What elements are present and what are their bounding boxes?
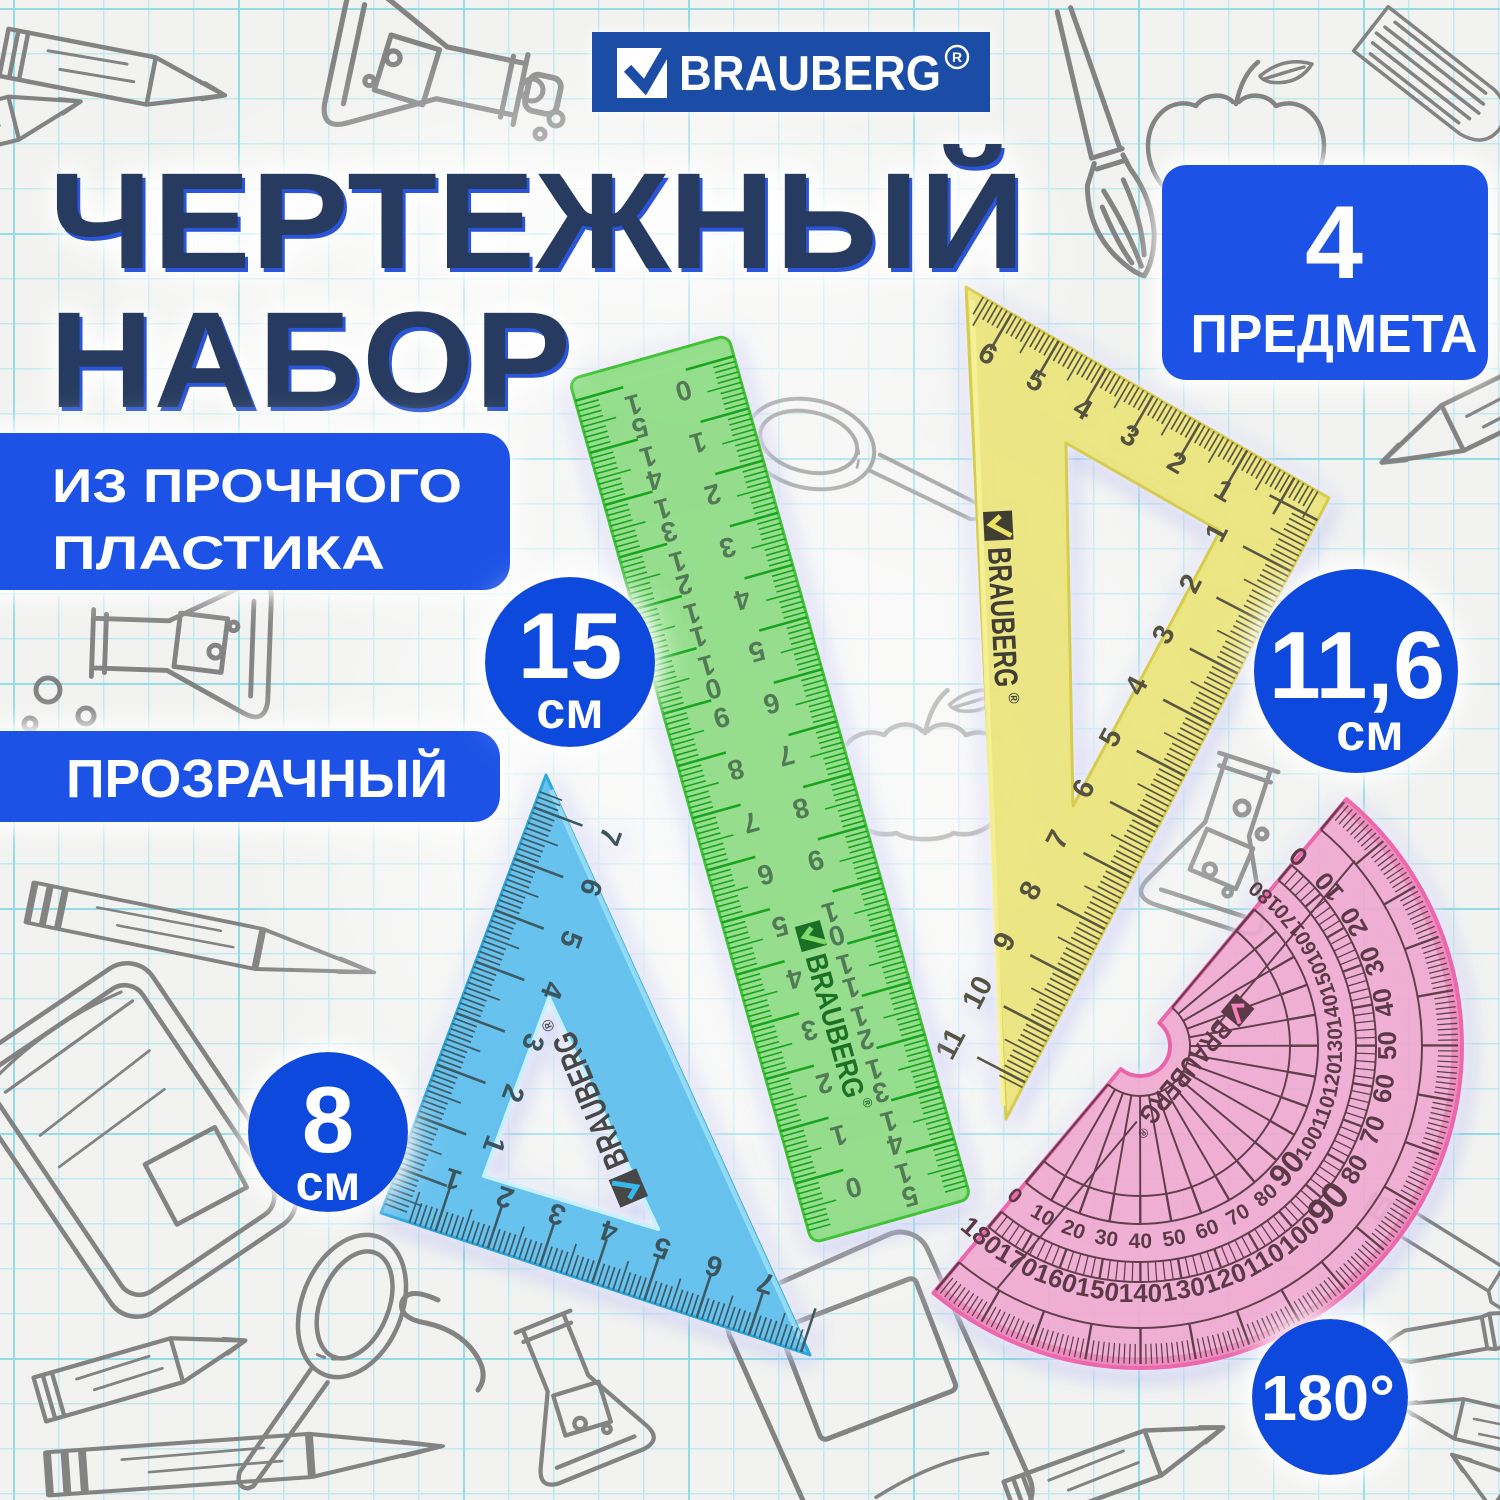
svg-text:130: 130 [1324, 1028, 1347, 1063]
svg-text:ПЛАСТИКА: ПЛАСТИКА [52, 526, 385, 579]
svg-text:60: 60 [1366, 1072, 1401, 1106]
svg-text:BRAUBERG: BRAUBERG [981, 546, 1025, 688]
svg-text:®: ® [1005, 692, 1023, 704]
svg-text:140: 140 [1119, 1278, 1162, 1308]
svg-text:ИЗ ПРОЧНОГО: ИЗ ПРОЧНОГО [52, 459, 462, 512]
svg-text:40: 40 [1129, 1230, 1152, 1253]
svg-text:50: 50 [1161, 1225, 1188, 1252]
svg-text:см: см [1336, 704, 1403, 762]
svg-text:см: см [296, 1155, 361, 1211]
svg-text:4: 4 [1305, 185, 1363, 301]
svg-text:R: R [952, 49, 962, 65]
svg-text:см: см [536, 682, 603, 740]
svg-text:ПРОЗРАЧНЫЙ: ПРОЗРАЧНЫЙ [66, 748, 448, 809]
svg-text:ЧЕРТЕЖНЫЙ: ЧЕРТЕЖНЫЙ [49, 143, 1025, 298]
svg-text:40: 40 [1366, 986, 1401, 1020]
svg-text:50: 50 [1372, 1031, 1402, 1060]
svg-text:НАБОР: НАБОР [49, 284, 571, 437]
svg-text:180°: 180° [1261, 1362, 1395, 1434]
svg-text:ПРЕДМЕТА: ПРЕДМЕТА [1191, 304, 1478, 364]
svg-text:BRAUBERG: BRAUBERG [679, 47, 941, 101]
svg-text:11,6: 11,6 [1269, 612, 1445, 719]
svg-text:30: 30 [1093, 1225, 1120, 1252]
